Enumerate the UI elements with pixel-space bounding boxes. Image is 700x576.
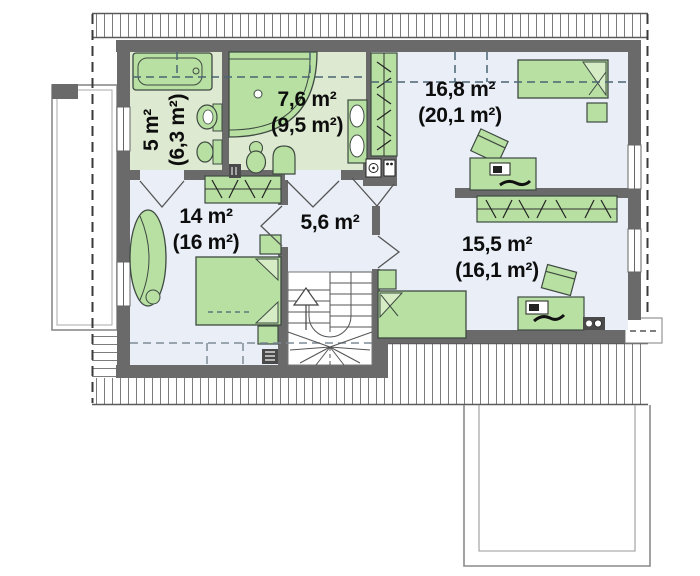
area-net: 5,6 m²: [301, 210, 360, 236]
lower-wall-notch: [625, 318, 662, 343]
radiator-icon: [262, 349, 278, 364]
balcony-wall-stub: [52, 84, 78, 99]
room-label-bathroom-main: 7,6 m² (9,5 m²): [227, 86, 387, 140]
toilet-icon: [273, 146, 295, 174]
radiator-icon: [229, 164, 241, 178]
laptop-icon: [526, 301, 548, 314]
window-icon: [628, 145, 641, 189]
dryer-icon: [384, 160, 395, 176]
area-net: 14 m²: [179, 204, 232, 230]
area-gross: (16,1 m²): [455, 258, 539, 284]
garage-roof-outline: [464, 405, 650, 566]
room-label-bedroom-se: 15,5 m² (16,1 m²): [417, 231, 577, 285]
toilet-icon: [197, 140, 222, 164]
area-net: 15,5 m²: [462, 232, 532, 258]
roof-hatch-left-side: [92, 330, 117, 378]
window-icon: [628, 229, 641, 272]
area-net: 7,6 m²: [278, 87, 337, 113]
room-label-bedroom-ne: 16,8 m² (20,1 m²): [380, 76, 540, 130]
area-net: 5 m²: [139, 109, 165, 151]
balcony: [52, 84, 117, 330]
double-bed-icon: [196, 257, 281, 325]
area-net: 16,8 m²: [425, 77, 495, 103]
washbasin-icon: [197, 104, 222, 131]
desk-icon: [470, 158, 536, 190]
toilet-icon: [247, 142, 266, 174]
area-gross: (16 m²): [173, 230, 240, 256]
room-label-hallway: 5,6 m²: [250, 209, 410, 236]
roof-hatch-top: [92, 13, 648, 38]
nightstand-icon: [378, 270, 396, 289]
laptop-icon: [490, 163, 510, 175]
floor-plan: 5 m² (6,3 m²) 7,6 m² (9,5 m²) 16,8 m² (2…: [0, 0, 700, 576]
wardrobe-icon: [477, 196, 617, 222]
roof-hatch-bottom-left: [92, 378, 388, 405]
desk-icon: [518, 297, 584, 330]
window-icon: [117, 262, 130, 306]
nightstand-icon: [587, 103, 607, 122]
bed-icon: [378, 291, 466, 338]
room-label-bathroom-small: 5 m² (6,3 m²): [138, 75, 192, 185]
washing-machine-icon: [366, 159, 381, 177]
speaker-icon: [583, 317, 605, 330]
area-gross: (9,5 m²): [271, 113, 343, 139]
nightstand-icon: [258, 326, 278, 344]
window-icon: [117, 107, 130, 151]
area-gross: (6,3 m²): [165, 94, 191, 166]
wardrobe-icon: [205, 176, 281, 203]
area-gross: (20,1 m²): [418, 103, 502, 129]
roof-hatch-bottom-right: [388, 343, 648, 405]
